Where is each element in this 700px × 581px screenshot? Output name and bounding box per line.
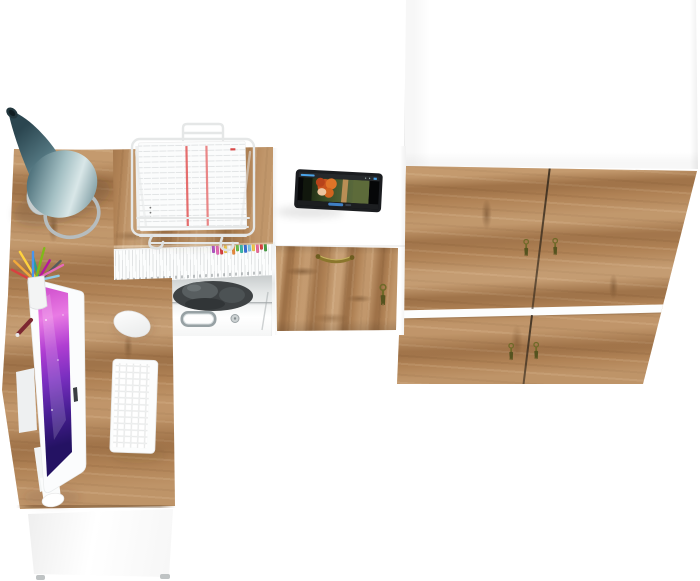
- pens: [12, 248, 63, 281]
- keyboard: [110, 359, 164, 463]
- wardrobe-keys: [509, 238, 557, 360]
- document-wire-rack: [132, 124, 254, 250]
- computer: [16, 278, 86, 509]
- scene-top-view: [0, 0, 700, 581]
- desk-lamp: [4, 105, 116, 243]
- tablet: [276, 169, 383, 218]
- cabinet-hardware: [316, 254, 386, 305]
- wardrobe-key-2: [553, 238, 557, 255]
- cabinet-key: [380, 285, 386, 306]
- maroon-pen: [18, 320, 31, 334]
- wardrobe-key-1: [524, 239, 528, 256]
- video-frame: [302, 177, 369, 204]
- wardrobe-key-4: [534, 342, 538, 359]
- office-chair: [173, 281, 253, 311]
- keyboard-keys: [113, 363, 150, 448]
- desk-items-layer: [0, 0, 700, 581]
- computer-back-foot: [16, 368, 37, 433]
- pen-cup-body: [28, 276, 47, 309]
- mouse: [111, 307, 154, 341]
- wardrobe-key-3: [509, 343, 513, 360]
- rack-handle: [183, 124, 223, 140]
